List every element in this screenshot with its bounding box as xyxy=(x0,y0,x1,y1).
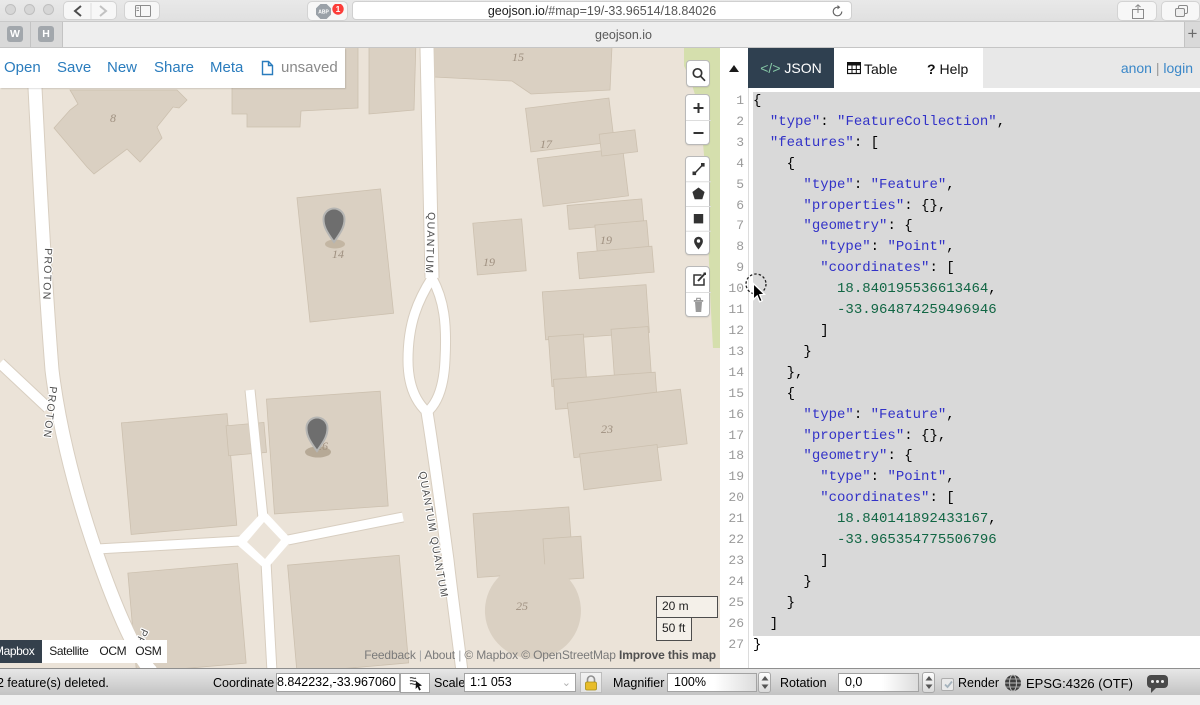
svg-text:8: 8 xyxy=(110,111,116,125)
svg-text:ABP: ABP xyxy=(318,10,329,16)
svg-text:19: 19 xyxy=(483,255,495,269)
svg-text:PROTON: PROTON xyxy=(40,248,54,301)
svg-text:1: 1 xyxy=(336,4,341,14)
svg-text:19: 19 xyxy=(600,233,612,247)
svg-text:14: 14 xyxy=(332,247,344,261)
svg-text:25: 25 xyxy=(516,599,528,613)
svg-text:23: 23 xyxy=(601,422,613,436)
svg-text:QUANTUM: QUANTUM xyxy=(423,212,437,275)
svg-text:17: 17 xyxy=(540,137,553,151)
svg-text:15: 15 xyxy=(512,50,524,64)
